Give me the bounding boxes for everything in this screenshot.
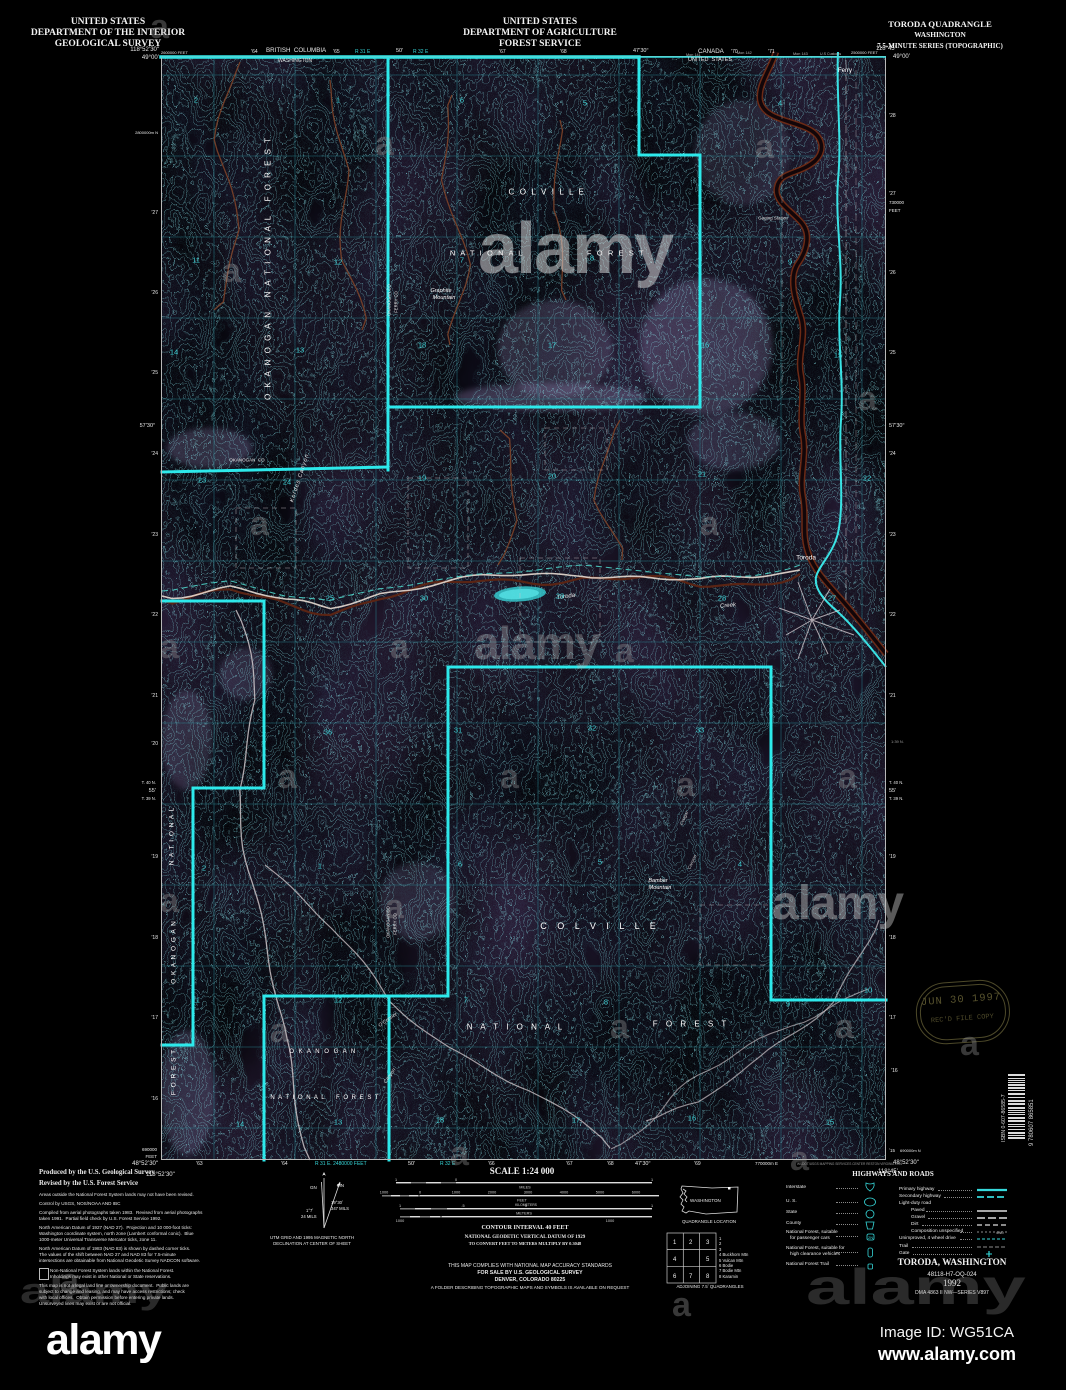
svg-text:4: 4: [673, 1257, 677, 1263]
svg-text:GN: GN: [310, 1185, 317, 1190]
svg-text:KILOMETERS: KILOMETERS: [515, 1203, 538, 1207]
svg-text:0: 0: [419, 1191, 421, 1195]
svg-text:.5: .5: [461, 1204, 464, 1208]
svg-text:8: 8: [706, 1274, 710, 1280]
svg-text:FEET: FEET: [517, 1199, 527, 1203]
svg-text:METERS: METERS: [516, 1212, 532, 1216]
svg-text:2: 2: [689, 1240, 693, 1246]
svg-text:5000: 5000: [596, 1191, 604, 1195]
svg-text:1°7ʼ: 1°7ʼ: [306, 1208, 313, 1213]
svg-text:MILES: MILES: [519, 1186, 531, 1190]
svg-text:6: 6: [673, 1274, 677, 1280]
svg-text:7: 7: [689, 1274, 693, 1280]
svg-text:1000: 1000: [452, 1191, 460, 1195]
svg-text:1: 1: [673, 1240, 677, 1246]
svg-text:MN: MN: [337, 1183, 344, 1188]
svg-text:2N: 2N: [868, 1235, 873, 1240]
svg-text:3: 3: [706, 1240, 710, 1246]
svg-text:6000: 6000: [632, 1191, 640, 1195]
svg-text:1000: 1000: [606, 1219, 614, 1222]
svg-text:19°30ʼ: 19°30ʼ: [331, 1200, 343, 1205]
svg-text:3000: 3000: [524, 1191, 532, 1195]
svg-text:1000: 1000: [380, 1191, 388, 1195]
svg-text:1: 1: [399, 1204, 401, 1208]
svg-text:4000: 4000: [560, 1191, 568, 1195]
svg-text:1000: 1000: [396, 1219, 404, 1222]
svg-text:ISBN 0-607-86585-7: ISBN 0-607-86585-7: [1001, 1094, 1007, 1142]
svg-text:0: 0: [455, 1178, 457, 1182]
svg-text:24 MILS: 24 MILS: [301, 1214, 317, 1219]
svg-text:2000: 2000: [488, 1191, 496, 1195]
svg-text:347 MILS: 347 MILS: [331, 1206, 349, 1211]
svg-text:9 780607 865851: 9 780607 865851: [1029, 1099, 1035, 1146]
svg-text:1: 1: [395, 1178, 397, 1182]
svg-text:1: 1: [651, 1204, 653, 1208]
svg-text:5: 5: [706, 1257, 710, 1263]
svg-text:1: 1: [651, 1178, 653, 1182]
svg-text:WASHINGTON: WASHINGTON: [690, 1198, 721, 1203]
